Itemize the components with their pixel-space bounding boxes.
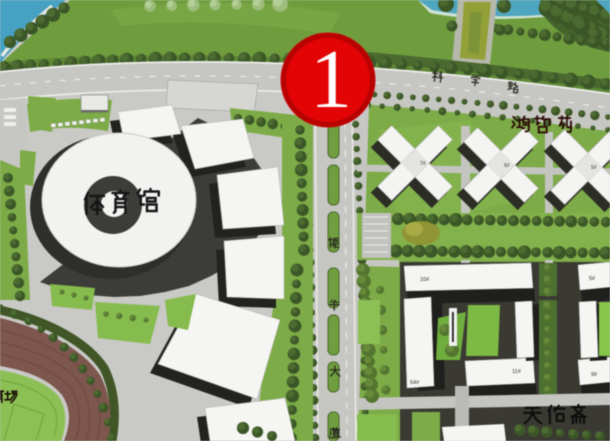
svg-text:54#: 54# <box>410 380 420 386</box>
svg-text:9#: 9# <box>591 372 598 378</box>
svg-text:11#: 11# <box>512 369 522 375</box>
svg-text:1: 1 <box>310 33 352 126</box>
svg-text:6#: 6# <box>504 163 510 169</box>
svg-text:7#: 7# <box>420 161 426 167</box>
svg-text:5#: 5# <box>591 165 597 171</box>
svg-text:10#: 10# <box>420 277 430 283</box>
svg-text:5#: 5# <box>589 276 596 282</box>
